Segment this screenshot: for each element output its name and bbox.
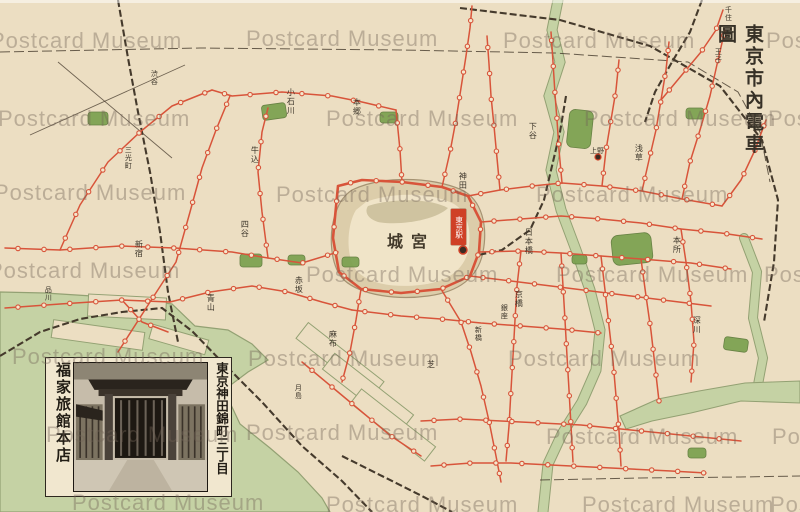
tram-station bbox=[398, 147, 402, 151]
tram-station bbox=[728, 193, 732, 197]
tram-station bbox=[610, 291, 614, 295]
tram-station bbox=[542, 250, 546, 254]
tram-station bbox=[596, 217, 600, 221]
tram-station bbox=[582, 182, 586, 186]
tram-station bbox=[146, 245, 150, 249]
inset-ryokan-name: 福家旅館本店 bbox=[50, 362, 70, 492]
tram-station bbox=[94, 300, 98, 304]
tram-station bbox=[665, 431, 669, 435]
tram-station bbox=[264, 243, 268, 247]
park bbox=[88, 112, 108, 125]
tram-station bbox=[330, 385, 334, 389]
tram-station bbox=[300, 91, 304, 95]
tram-station bbox=[198, 248, 202, 252]
tram-station bbox=[374, 179, 378, 183]
tram-station bbox=[703, 109, 707, 113]
tram-station bbox=[489, 97, 493, 101]
tram-station bbox=[663, 74, 667, 78]
tram-station bbox=[248, 92, 252, 96]
tram-station bbox=[563, 316, 567, 320]
tram-station bbox=[570, 446, 574, 450]
tram-station bbox=[448, 147, 452, 151]
tram-station bbox=[643, 176, 647, 180]
railway bbox=[58, 62, 172, 158]
tram-station bbox=[400, 180, 404, 184]
tram-station bbox=[536, 421, 540, 425]
park bbox=[572, 255, 587, 264]
tram-station bbox=[467, 345, 471, 349]
tram-station bbox=[636, 295, 640, 299]
tram-station bbox=[657, 399, 661, 403]
map-title: 東京市內電車圖 bbox=[713, 24, 767, 176]
tram-station bbox=[723, 266, 727, 270]
tram-station bbox=[572, 464, 576, 468]
tram-station bbox=[618, 448, 622, 452]
tram-station bbox=[325, 253, 329, 257]
railway bbox=[342, 456, 452, 512]
tram-station bbox=[641, 270, 645, 274]
tram-station bbox=[352, 325, 356, 329]
tram-station bbox=[476, 253, 480, 257]
tram-station bbox=[700, 48, 704, 52]
tram-station bbox=[497, 471, 501, 475]
tram-station bbox=[651, 347, 655, 351]
tram-station bbox=[459, 320, 463, 324]
tokyo-station-dot bbox=[459, 246, 467, 254]
tram-station bbox=[609, 119, 613, 123]
tram-station bbox=[688, 291, 692, 295]
tram-station bbox=[509, 391, 513, 395]
tram-station bbox=[621, 219, 625, 223]
tram-station bbox=[603, 293, 607, 297]
tram-station bbox=[146, 299, 150, 303]
tram-station bbox=[249, 253, 253, 257]
tram-station bbox=[137, 131, 141, 135]
tram-station bbox=[370, 418, 374, 422]
tram-station bbox=[650, 468, 654, 472]
tram-station bbox=[351, 98, 355, 102]
tram-station bbox=[342, 274, 346, 278]
tram-station bbox=[725, 232, 729, 236]
tram-station bbox=[475, 370, 479, 374]
tram-station bbox=[634, 188, 638, 192]
tram-station bbox=[16, 246, 20, 250]
tram-station bbox=[16, 305, 20, 309]
tram-station bbox=[308, 296, 312, 300]
tram-station bbox=[458, 417, 462, 421]
tram-station bbox=[639, 429, 643, 433]
tram-station bbox=[441, 286, 445, 290]
tram-station bbox=[261, 217, 265, 221]
tram-station bbox=[697, 262, 701, 266]
tram-station bbox=[390, 435, 394, 439]
tram-station bbox=[222, 92, 226, 96]
tram-station bbox=[348, 181, 352, 185]
tram-station bbox=[659, 193, 663, 197]
tram-station bbox=[614, 396, 618, 400]
tram-station bbox=[440, 317, 444, 321]
park bbox=[688, 448, 706, 458]
tram-station bbox=[180, 297, 184, 301]
tram-station bbox=[558, 285, 562, 289]
tram-station bbox=[224, 249, 228, 253]
tram-station bbox=[275, 257, 279, 261]
tram-station bbox=[688, 159, 692, 163]
tram-station bbox=[333, 303, 337, 307]
railway bbox=[118, 0, 178, 342]
tram-station bbox=[231, 286, 235, 290]
tram-station bbox=[259, 140, 263, 144]
tram-station bbox=[206, 150, 210, 154]
tram-station bbox=[389, 313, 393, 317]
tram-station bbox=[691, 434, 695, 438]
tram-station bbox=[256, 165, 260, 169]
tram-station bbox=[63, 236, 67, 240]
tram-station bbox=[600, 267, 604, 271]
tram-station bbox=[673, 226, 677, 230]
tram-station bbox=[123, 339, 127, 343]
tram-station bbox=[598, 465, 602, 469]
tram-station bbox=[333, 251, 337, 255]
tram-station bbox=[512, 340, 516, 344]
tram-station bbox=[479, 191, 483, 195]
tram-station bbox=[301, 261, 305, 265]
tram-station bbox=[553, 90, 557, 94]
tram-station bbox=[567, 394, 571, 398]
tram-station bbox=[606, 318, 610, 322]
tram-station bbox=[157, 114, 161, 118]
tram-station bbox=[549, 38, 553, 42]
tram-station bbox=[681, 240, 685, 244]
tram-station bbox=[151, 295, 155, 299]
tram-station bbox=[492, 446, 496, 450]
tram-station bbox=[412, 449, 416, 453]
tram-station bbox=[377, 104, 381, 108]
tram-station bbox=[701, 471, 705, 475]
tram-station bbox=[494, 461, 498, 465]
tram-station bbox=[532, 282, 536, 286]
tram-station bbox=[465, 275, 469, 279]
tram-station bbox=[469, 18, 473, 22]
tram-station bbox=[257, 285, 261, 289]
tram-station bbox=[685, 265, 689, 269]
ryokan-photo-drawing bbox=[74, 363, 207, 491]
tram-station bbox=[94, 245, 98, 249]
tram-station bbox=[101, 168, 105, 172]
inset-address: 東京神田錦町三丁目 bbox=[211, 362, 227, 492]
tram-station bbox=[120, 298, 124, 302]
tram-station bbox=[68, 247, 72, 251]
tram-station bbox=[177, 250, 181, 254]
tram-station bbox=[334, 199, 338, 203]
tram-station bbox=[648, 321, 652, 325]
tram-station bbox=[172, 246, 176, 250]
tram-station bbox=[520, 461, 524, 465]
tram-station bbox=[42, 303, 46, 307]
tram-station bbox=[685, 198, 689, 202]
tram-station bbox=[481, 395, 485, 399]
tram-station bbox=[184, 225, 188, 229]
tram-station bbox=[569, 420, 573, 424]
tram-station bbox=[129, 307, 133, 311]
tram-station bbox=[568, 252, 572, 256]
tram-station bbox=[584, 288, 588, 292]
tram-station bbox=[683, 184, 687, 188]
ueno-station-dot bbox=[595, 154, 601, 160]
tram-station bbox=[661, 298, 665, 302]
park bbox=[723, 336, 749, 352]
tram-station bbox=[608, 185, 612, 189]
tram-station bbox=[518, 217, 522, 221]
tram-station bbox=[699, 229, 703, 233]
tram-station bbox=[42, 247, 46, 251]
tram-station bbox=[446, 298, 450, 302]
tram-station bbox=[465, 44, 469, 48]
ryokan-photo bbox=[73, 362, 208, 492]
tram-station bbox=[676, 469, 680, 473]
tram-station bbox=[594, 253, 598, 257]
tram-station bbox=[690, 369, 694, 373]
tram-station bbox=[750, 235, 754, 239]
tram-station bbox=[510, 419, 514, 423]
tram-station bbox=[453, 121, 457, 125]
tram-station bbox=[654, 125, 658, 129]
tram-station bbox=[544, 215, 548, 219]
tram-station bbox=[494, 149, 498, 153]
tram-station bbox=[613, 94, 617, 98]
tram-station bbox=[206, 290, 210, 294]
tram-station bbox=[118, 149, 122, 153]
tram-station bbox=[497, 175, 501, 179]
tram-station bbox=[414, 315, 418, 319]
tram-station bbox=[415, 289, 419, 293]
river-band bbox=[620, 381, 800, 429]
tram-station bbox=[566, 368, 570, 372]
tram-station bbox=[517, 262, 521, 266]
tram-station bbox=[671, 259, 675, 263]
tram-station bbox=[647, 222, 651, 226]
tram-station bbox=[616, 68, 620, 72]
tram-station bbox=[363, 287, 367, 291]
tram-station bbox=[179, 100, 183, 104]
tram-station bbox=[399, 173, 403, 177]
tram-station bbox=[687, 301, 691, 305]
tram-station bbox=[556, 142, 560, 146]
tram-station bbox=[710, 202, 714, 206]
tram-station bbox=[348, 351, 352, 355]
tram-station bbox=[215, 126, 219, 130]
tram-station bbox=[659, 100, 663, 104]
tram-station bbox=[556, 181, 560, 185]
tram-station bbox=[692, 343, 696, 347]
tram-station bbox=[601, 171, 605, 175]
tram-station bbox=[646, 257, 650, 261]
tram-station bbox=[203, 91, 207, 95]
tram-station bbox=[470, 203, 474, 207]
tram-station bbox=[690, 317, 694, 321]
tram-station bbox=[505, 443, 509, 447]
tram-station bbox=[258, 191, 262, 195]
tram-station bbox=[481, 275, 485, 279]
tram-station bbox=[562, 422, 566, 426]
tram-station bbox=[564, 342, 568, 346]
tram-station bbox=[363, 309, 367, 313]
park-ueno bbox=[566, 109, 594, 149]
postcard: 王子千住三光町渋谷上野月島品川新宿四谷牛込小石川本郷下谷浅草本所深川神田日本橋京… bbox=[0, 0, 800, 512]
photo-inset: 福家旅館本店 bbox=[45, 357, 232, 497]
tram-station bbox=[560, 264, 564, 268]
tram-station bbox=[666, 48, 670, 52]
tram-station bbox=[451, 189, 455, 193]
tram-station bbox=[274, 90, 278, 94]
tram-station bbox=[510, 365, 514, 369]
tram-station bbox=[443, 172, 447, 176]
tram-station bbox=[389, 290, 393, 294]
tram-station bbox=[492, 219, 496, 223]
tram-station bbox=[442, 463, 446, 467]
tram-station bbox=[487, 71, 491, 75]
tram-station bbox=[137, 317, 141, 321]
tram-station bbox=[224, 102, 228, 106]
tram-station bbox=[120, 244, 124, 248]
tram-station bbox=[516, 249, 520, 253]
tram-station bbox=[478, 227, 482, 231]
tram-station bbox=[432, 418, 436, 422]
tram-station bbox=[68, 301, 72, 305]
tram-station bbox=[283, 289, 287, 293]
tram-station bbox=[86, 190, 90, 194]
tram-station bbox=[350, 401, 354, 405]
tram-station bbox=[624, 467, 628, 471]
tokyo-station-label: 東京駅 bbox=[451, 209, 466, 245]
tram-station bbox=[644, 295, 648, 299]
postcard-edge bbox=[0, 0, 800, 3]
tram-station bbox=[612, 370, 616, 374]
tram-station bbox=[395, 121, 399, 125]
imperial-palace-label: 宮城 bbox=[366, 228, 456, 252]
tram-station bbox=[616, 422, 620, 426]
tram-station bbox=[613, 426, 617, 430]
tram-station bbox=[588, 424, 592, 428]
tram-station bbox=[492, 322, 496, 326]
tram-station bbox=[310, 368, 314, 372]
tram-station bbox=[515, 288, 519, 292]
east-river-fill bbox=[744, 238, 763, 390]
tram-station bbox=[504, 187, 508, 191]
tram-station bbox=[197, 175, 201, 179]
tram-station bbox=[264, 114, 268, 118]
tram-station bbox=[609, 344, 613, 348]
tram-station bbox=[561, 290, 565, 294]
tram-station bbox=[518, 324, 522, 328]
park bbox=[342, 257, 359, 267]
tram-station bbox=[468, 461, 472, 465]
tram-station bbox=[513, 314, 517, 318]
tram-station bbox=[717, 437, 721, 441]
tram-station bbox=[604, 145, 608, 149]
tram-station bbox=[490, 250, 494, 254]
tram-station bbox=[190, 200, 194, 204]
tram-station bbox=[149, 323, 153, 327]
tram-station bbox=[544, 326, 548, 330]
tram-station bbox=[530, 184, 534, 188]
tram-station bbox=[492, 123, 496, 127]
tram-station bbox=[486, 45, 490, 49]
tram-station bbox=[461, 70, 465, 74]
tram-station bbox=[74, 212, 78, 216]
railway bbox=[540, 476, 800, 480]
tram-station bbox=[555, 116, 559, 120]
tram-station bbox=[326, 94, 330, 98]
tram-station bbox=[570, 328, 574, 332]
tram-station bbox=[684, 68, 688, 72]
tram-station bbox=[357, 300, 361, 304]
tram-station bbox=[466, 320, 470, 324]
tram-station bbox=[165, 273, 169, 277]
tram-station bbox=[654, 373, 658, 377]
tram-station bbox=[696, 134, 700, 138]
tram-station bbox=[341, 376, 345, 380]
tram-station bbox=[457, 96, 461, 100]
tram-station bbox=[551, 64, 555, 68]
park bbox=[686, 108, 704, 119]
tram-station bbox=[620, 255, 624, 259]
tram-station bbox=[559, 168, 563, 172]
tram-station bbox=[596, 331, 600, 335]
tram-station bbox=[332, 225, 336, 229]
tram-station bbox=[426, 183, 430, 187]
tram-station bbox=[546, 463, 550, 467]
tram-station bbox=[570, 215, 574, 219]
tram-station bbox=[648, 151, 652, 155]
tram-station bbox=[484, 418, 488, 422]
tram-station bbox=[667, 88, 671, 92]
tram-station bbox=[507, 279, 511, 283]
